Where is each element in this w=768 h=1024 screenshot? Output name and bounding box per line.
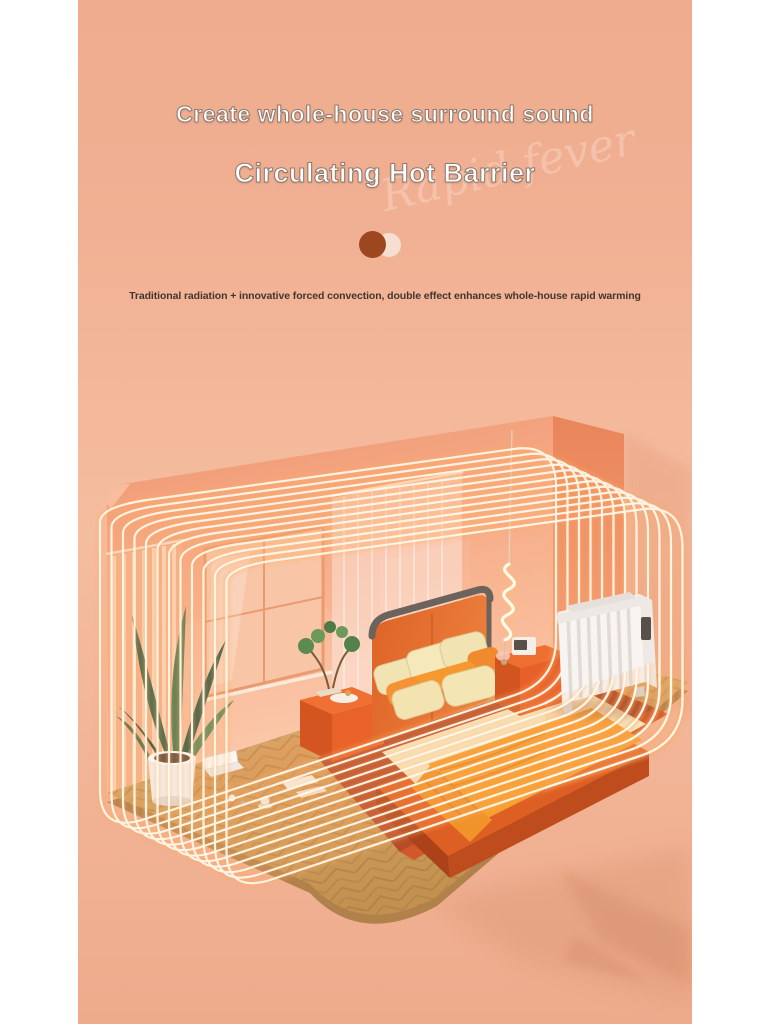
- room-illustration: [78, 0, 692, 1024]
- promo-panel: Rapid fever Create whole-house surround …: [78, 0, 692, 1024]
- promo-page: Rapid fever Create whole-house surround …: [0, 0, 768, 1024]
